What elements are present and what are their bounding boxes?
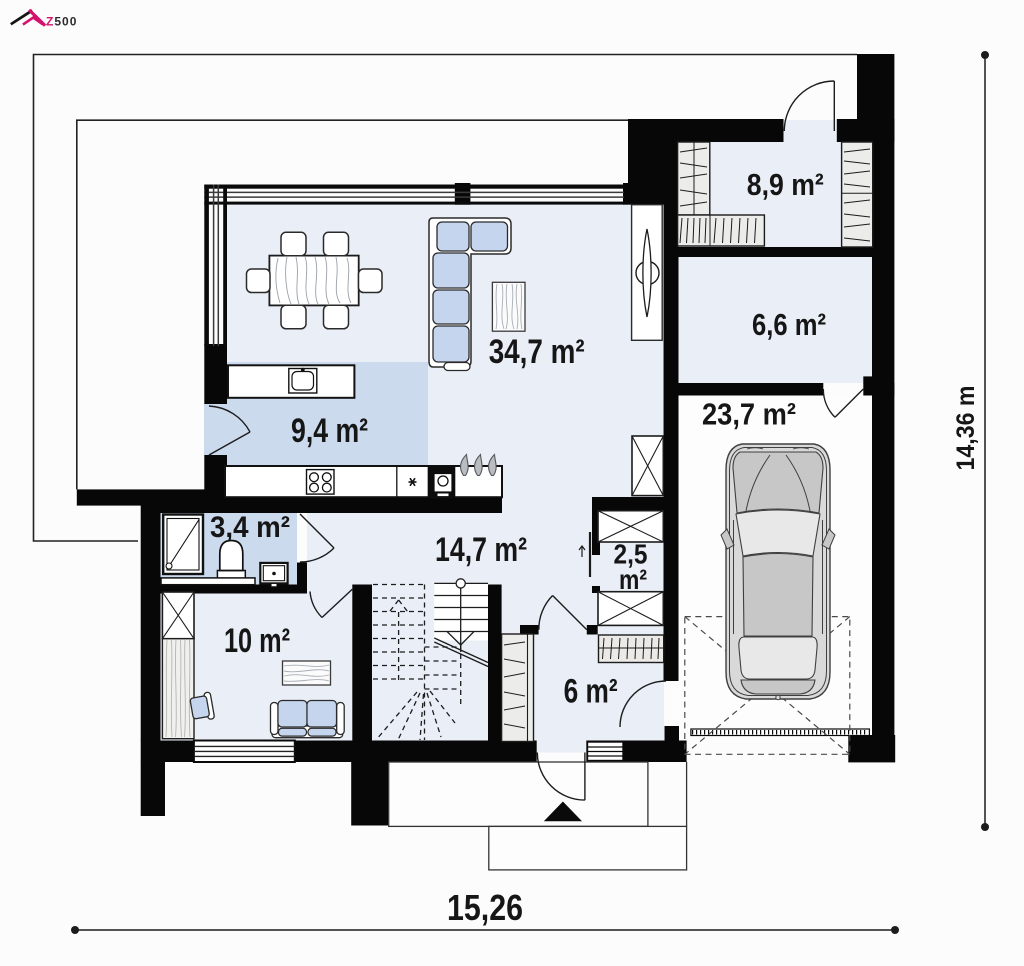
svg-text:9,4 m²: 9,4 m²	[291, 412, 368, 450]
svg-text:34,7 m²: 34,7 m²	[489, 333, 585, 371]
svg-text:Z500: Z500	[46, 15, 77, 29]
svg-text:10 m²: 10 m²	[224, 622, 290, 660]
svg-text:15,26: 15,26	[447, 887, 523, 928]
svg-text:14,36 m: 14,36 m	[952, 386, 980, 471]
svg-text:6,6 m²: 6,6 m²	[752, 307, 826, 342]
svg-text:m²: m²	[619, 564, 647, 595]
svg-text:23,7 m²: 23,7 m²	[702, 397, 796, 432]
svg-text:6 m²: 6 m²	[564, 673, 618, 711]
svg-text:14,7 m²: 14,7 m²	[435, 531, 527, 569]
svg-text:8,9 m²: 8,9 m²	[747, 167, 824, 202]
svg-text:3,4 m²: 3,4 m²	[210, 511, 290, 544]
